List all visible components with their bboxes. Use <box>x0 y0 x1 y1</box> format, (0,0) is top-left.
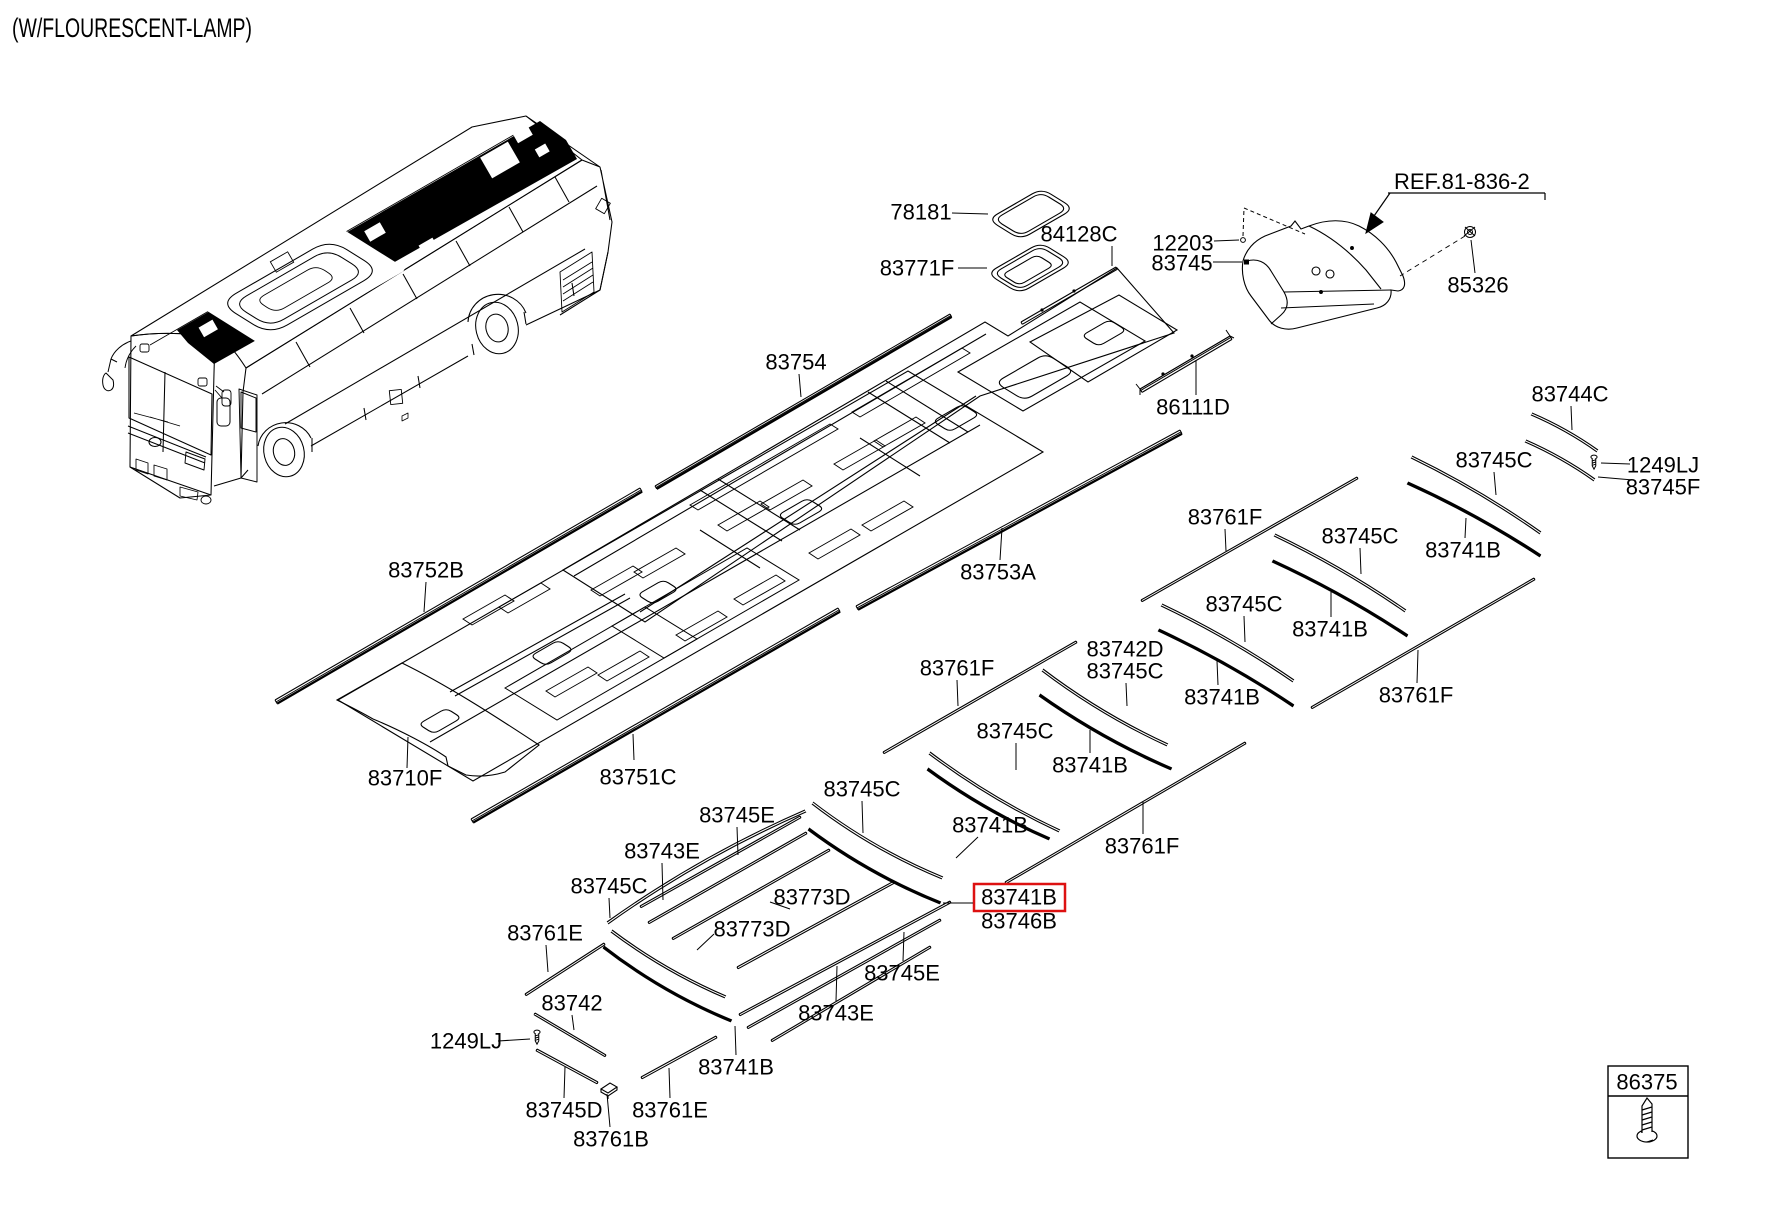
svg-text:83761B: 83761B <box>573 1127 649 1152</box>
svg-text:83744C: 83744C <box>1531 382 1608 407</box>
svg-text:83741B: 83741B <box>981 885 1057 910</box>
svg-text:83745C: 83745C <box>1205 592 1282 617</box>
svg-text:83761F: 83761F <box>920 656 995 681</box>
svg-text:83773D: 83773D <box>773 885 850 910</box>
svg-text:85326: 85326 <box>1447 273 1508 298</box>
svg-text:83754: 83754 <box>765 350 826 375</box>
svg-text:83745D: 83745D <box>525 1098 602 1123</box>
svg-text:83745C: 83745C <box>976 719 1053 744</box>
svg-text:78181: 78181 <box>890 200 951 225</box>
svg-text:83745C: 83745C <box>570 874 647 899</box>
svg-text:83761E: 83761E <box>507 921 583 946</box>
svg-text:83761F: 83761F <box>1105 834 1180 859</box>
svg-text:83745C: 83745C <box>1321 524 1398 549</box>
svg-text:83761F: 83761F <box>1188 505 1263 530</box>
svg-text:83743E: 83743E <box>624 839 700 864</box>
svg-text:86111D: 86111D <box>1156 395 1230 420</box>
svg-text:83741B: 83741B <box>1184 685 1260 710</box>
svg-text:83741B: 83741B <box>698 1055 774 1080</box>
svg-text:83741B: 83741B <box>1425 538 1501 563</box>
svg-text:83745C: 83745C <box>823 777 900 802</box>
svg-text:1249LJ: 1249LJ <box>430 1029 502 1054</box>
svg-text:83745C: 83745C <box>1455 448 1532 473</box>
svg-text:83751C: 83751C <box>599 765 676 790</box>
svg-text:83753A: 83753A <box>960 560 1036 585</box>
svg-text:83741B: 83741B <box>1052 753 1128 778</box>
svg-text:83710F: 83710F <box>368 766 443 791</box>
svg-text:83741B: 83741B <box>952 813 1028 838</box>
svg-text:83771F: 83771F <box>880 256 955 281</box>
svg-text:REF.81-836-2: REF.81-836-2 <box>1394 169 1530 194</box>
svg-text:83745F: 83745F <box>1626 475 1701 500</box>
svg-text:83741B: 83741B <box>1292 617 1368 642</box>
svg-text:83752B: 83752B <box>388 558 464 583</box>
svg-text:83745C: 83745C <box>1086 659 1163 684</box>
svg-text:(W/FLOURESCENT-LAMP): (W/FLOURESCENT-LAMP) <box>12 13 252 43</box>
svg-text:83761F: 83761F <box>1379 683 1454 708</box>
svg-text:84128C: 84128C <box>1040 222 1117 247</box>
svg-text:83746B: 83746B <box>981 909 1057 934</box>
svg-text:83745: 83745 <box>1151 251 1212 276</box>
svg-text:83761E: 83761E <box>632 1098 708 1123</box>
svg-text:83773D: 83773D <box>713 917 790 942</box>
svg-text:86375: 86375 <box>1616 1070 1677 1095</box>
svg-text:83742: 83742 <box>541 991 602 1016</box>
svg-text:83745E: 83745E <box>699 803 775 828</box>
